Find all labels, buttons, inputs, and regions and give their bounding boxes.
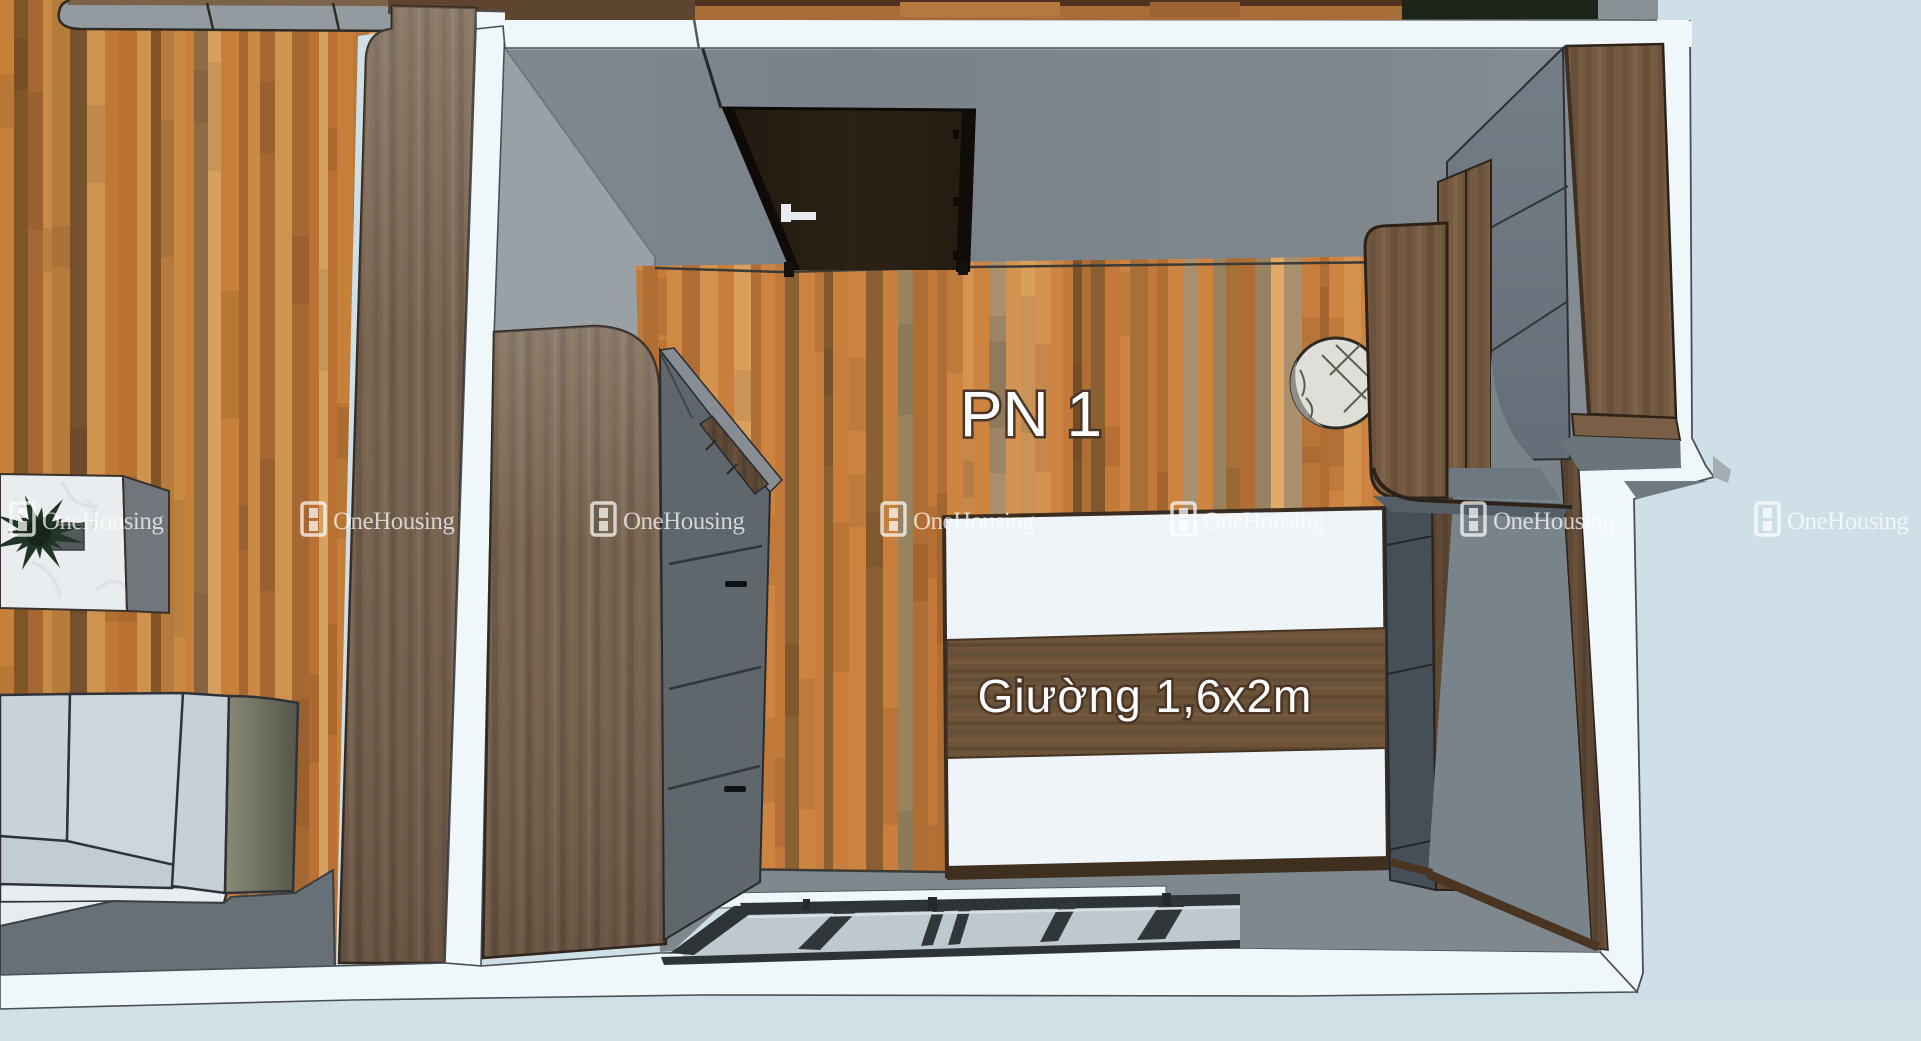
svg-text:Giường 1,6x2m: Giường 1,6x2m (978, 670, 1313, 722)
svg-text:OneHousing: OneHousing (42, 508, 164, 535)
svg-text:PN 1: PN 1 (960, 378, 1102, 450)
svg-text:OneHousing: OneHousing (1203, 508, 1325, 535)
svg-text:OneHousing: OneHousing (1493, 508, 1615, 535)
svg-text:OneHousing: OneHousing (1787, 508, 1909, 535)
svg-text:OneHousing: OneHousing (913, 508, 1035, 535)
svg-text:OneHousing: OneHousing (333, 508, 455, 535)
svg-text:OneHousing: OneHousing (623, 508, 745, 535)
